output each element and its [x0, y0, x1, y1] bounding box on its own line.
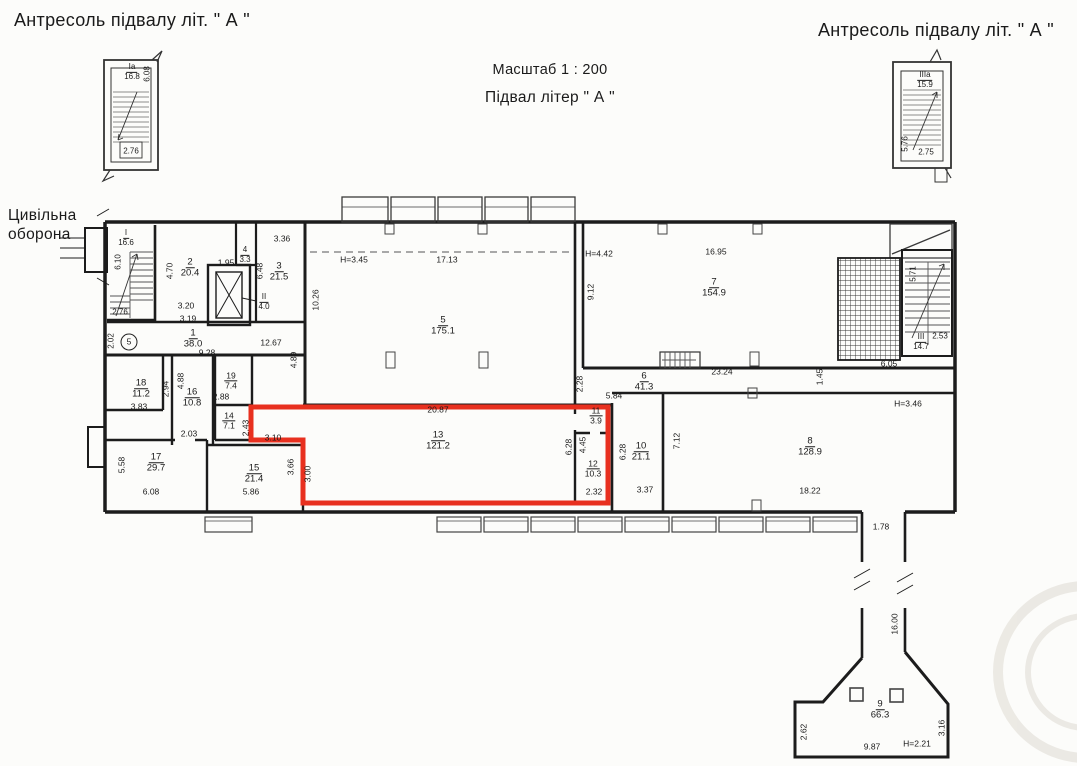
dim-label: 10.26 — [311, 289, 320, 310]
dim-label: 1.95 — [218, 258, 235, 267]
dim-label: 3.00 — [303, 466, 312, 483]
dim-label: H=3.45 — [340, 255, 368, 264]
dim-label: 7.12 — [672, 433, 681, 450]
room-label: 220.4 — [181, 257, 200, 279]
room-label: I16.6 — [118, 229, 134, 247]
room-label: IIIa15.9 — [917, 71, 933, 89]
dim-label: 3.66 — [286, 459, 295, 476]
dim-label: 17.13 — [436, 255, 457, 264]
dim-label: 5.76 — [902, 136, 911, 152]
room-label: Ia16.8 — [124, 63, 140, 81]
room-label: 1210.3 — [585, 459, 602, 478]
dim-label: 3.19 — [180, 314, 197, 323]
room-label: 197.4 — [224, 371, 237, 390]
dim-label: 6.10 — [115, 254, 124, 270]
dim-label: 12.67 — [260, 338, 281, 347]
dim-label: 9.12 — [586, 284, 595, 301]
dim-label: 2.75 — [918, 149, 934, 158]
room-label: 1021.1 — [632, 441, 651, 463]
dim-label: 6.05 — [881, 359, 898, 368]
dim-label: 20.87 — [427, 405, 448, 414]
dim-label: 16.00 — [890, 613, 899, 634]
dim-label: 6.08 — [144, 66, 153, 82]
dim-label: 2.28 — [575, 376, 584, 393]
dim-label: 3.20 — [178, 301, 195, 310]
dim-label: H=2.21 — [903, 739, 931, 748]
dim-label: H=4.42 — [585, 249, 613, 258]
dim-label: H=3.46 — [894, 399, 922, 408]
dim-label: 2.62 — [799, 724, 808, 741]
room-label: 113.9 — [590, 406, 603, 425]
room-label: 1729.7 — [147, 452, 166, 474]
room-label: 8128.9 — [798, 436, 822, 458]
dim-label: 16.95 — [705, 247, 726, 256]
room-label: II4.0 — [258, 293, 269, 311]
dim-label: 5.84 — [606, 391, 623, 400]
dim-label: 9.28 — [199, 348, 216, 357]
dim-label: 3.16 — [937, 720, 946, 737]
dim-label: 18.22 — [799, 486, 820, 495]
room-label: 966.3 — [871, 699, 890, 721]
room-label: 43.3 — [239, 246, 250, 264]
dim-label: 6.28 — [618, 444, 627, 461]
dim-label: 1.78 — [873, 522, 890, 531]
dim-label: 2.32 — [586, 487, 603, 496]
dim-label: 3.36 — [274, 234, 291, 243]
dim-label: 2.43 — [241, 420, 250, 437]
plan-labels-layer: Ia16.86.082.76IIIa15.95.762.75I16.66.102… — [0, 0, 1077, 766]
dim-label: 4.70 — [165, 263, 174, 280]
dim-label: 5.71 — [910, 266, 919, 282]
circled-number: 5 — [121, 334, 138, 351]
room-label: 13121.2 — [426, 430, 450, 452]
dim-label: 4.89 — [289, 352, 298, 369]
dim-label: 2.03 — [181, 429, 198, 438]
dim-label: 5.58 — [117, 457, 126, 474]
dim-label: 5.86 — [243, 487, 260, 496]
dim-label: 2.76 — [112, 309, 128, 318]
room-label: 7154.9 — [702, 277, 726, 299]
floor-plan-page: Антресоль підвалу літ. " А " Антресоль п… — [0, 0, 1077, 766]
dim-label: 2.53 — [932, 333, 948, 342]
dim-label: 6.28 — [564, 439, 573, 456]
dim-label: 23.24 — [711, 367, 732, 376]
dim-label: 1.45 — [815, 369, 824, 386]
dim-label: 4.45 — [578, 437, 587, 454]
room-label: 1610.8 — [183, 387, 202, 409]
room-label: 1521.4 — [245, 463, 264, 485]
dim-label: 3.83 — [131, 402, 148, 411]
dim-label: 6.08 — [143, 487, 160, 496]
room-label: 5175.1 — [431, 315, 455, 337]
dim-label: 6.48 — [255, 263, 264, 280]
room-label: 1811.2 — [132, 378, 150, 400]
room-label: 147.1 — [222, 411, 235, 430]
dim-label: 3.10 — [265, 433, 282, 442]
room-label: III14.7 — [913, 333, 929, 351]
dim-label: 2.94 — [161, 381, 170, 398]
dim-label: 2.76 — [123, 148, 139, 157]
dim-label: 9.87 — [864, 742, 881, 751]
room-label: 641.3 — [635, 371, 654, 393]
dim-label: 2.88 — [213, 392, 230, 401]
dim-label: 3.37 — [637, 485, 654, 494]
room-label: 321.5 — [270, 261, 289, 283]
dim-label: 2.02 — [108, 333, 117, 349]
